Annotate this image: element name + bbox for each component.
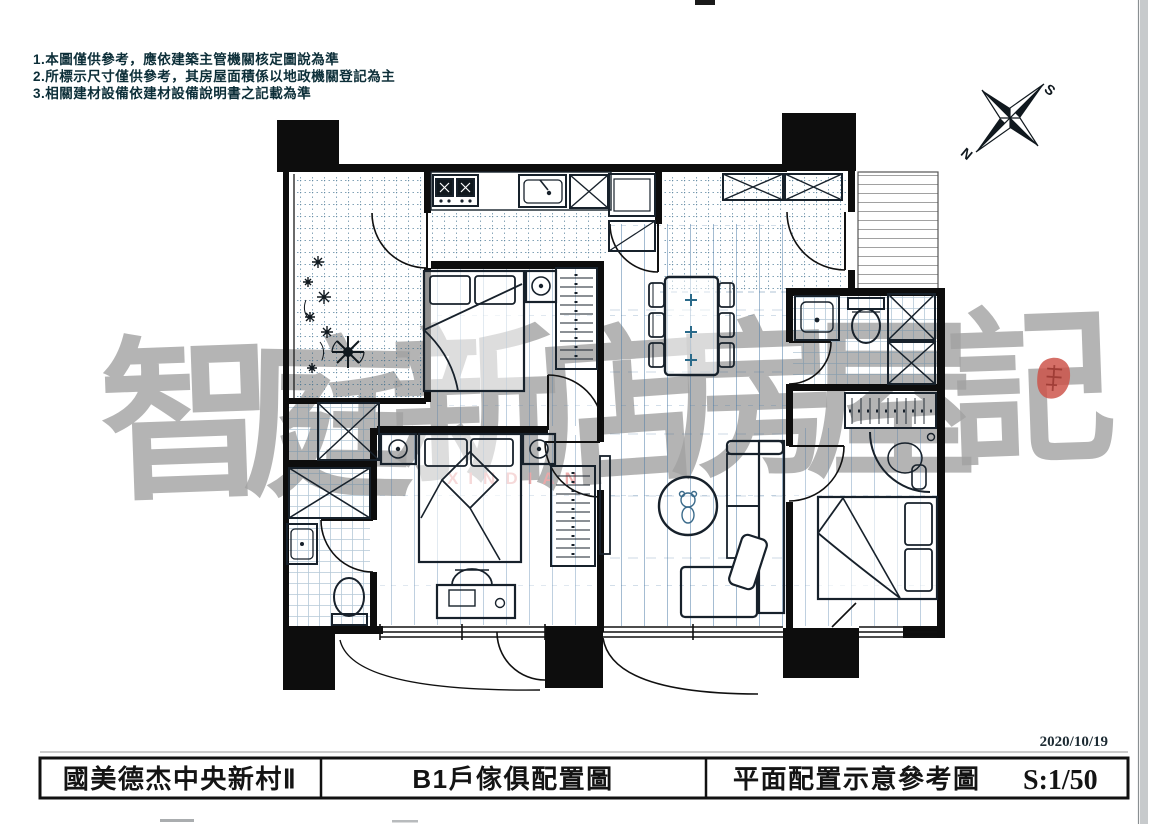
drawing-type: 平面配置示意參考圖 bbox=[733, 764, 981, 794]
note-line-2: 2.所標示尺寸僅供參考，其房屋面積係以地政機關登記為主 bbox=[33, 68, 395, 84]
column-top-left bbox=[277, 120, 339, 172]
floor-plan-sheet: 智 庭 新 店 房 屋 記 XINDIAN bbox=[0, 0, 1168, 824]
note-line-1: 1.本圖僅供參考，應依建築主管機關核定圖說為準 bbox=[33, 51, 339, 67]
laundry-tile-floor bbox=[289, 404, 377, 460]
floor-plan-drawing: 智 庭 新 店 房 屋 記 XINDIAN bbox=[0, 0, 1168, 824]
wall-bath2-top bbox=[289, 460, 377, 467]
wall-foyer-right-a bbox=[848, 168, 855, 212]
wall-top bbox=[336, 164, 787, 172]
column-top-right bbox=[782, 113, 856, 171]
compass-south-label: S bbox=[1041, 81, 1058, 99]
stove bbox=[433, 175, 478, 206]
wall-bath1-left bbox=[786, 288, 793, 342]
watermark-char: 記 bbox=[944, 287, 1119, 491]
scan-mark-top bbox=[695, 0, 715, 5]
wall-balcony-a bbox=[424, 168, 431, 213]
wall-right bbox=[937, 288, 945, 636]
wall-bath1-bottom bbox=[786, 384, 944, 391]
drawing-date: 2020/10/19 bbox=[1040, 734, 1108, 750]
title-block: 國美德杰中央新村Ⅱ B1戶傢俱配置圖 平面配置示意參考圖 S:1/50 2020… bbox=[40, 734, 1128, 798]
wall-bedroom3-left-a bbox=[786, 391, 793, 446]
drawing-title: B1戶傢俱配置圖 bbox=[412, 764, 613, 794]
drawing-scale: S:1/50 bbox=[1023, 765, 1098, 796]
ac-ledge bbox=[858, 172, 938, 290]
compass-star-icon bbox=[976, 84, 1044, 152]
window-bedroom2 bbox=[380, 624, 545, 640]
column-bottom-middle bbox=[545, 626, 603, 688]
kitchen-sink bbox=[519, 175, 566, 207]
compass-north-label: N bbox=[958, 144, 976, 163]
window-living bbox=[603, 624, 783, 640]
master-bed bbox=[424, 271, 524, 391]
wall-bath2-right-a bbox=[370, 428, 377, 520]
refrigerator bbox=[570, 175, 608, 208]
disclaimer-notes: 1.本圖僅供參考，應依建築主管機關核定圖說為準 2.所標示尺寸僅供參考，其房屋面… bbox=[33, 51, 395, 101]
bedroom2-bed bbox=[419, 434, 521, 562]
note-line-3: 3.相關建材設備依建材設備說明書之記載為準 bbox=[33, 85, 311, 101]
wall-kitchen-right bbox=[655, 168, 662, 224]
wall-east-a bbox=[597, 269, 604, 426]
project-name: 國美德杰中央新村Ⅱ bbox=[63, 764, 297, 794]
column-bottom-right bbox=[783, 628, 859, 678]
scan-edge-band bbox=[1140, 0, 1148, 824]
wall-bedroom3-left-b bbox=[786, 502, 793, 628]
balcony-tile-floor bbox=[296, 174, 424, 398]
kitchen-tile-floor bbox=[431, 212, 608, 260]
scan-mark-bottom-1 bbox=[160, 819, 194, 822]
door-balcony-bottom-left bbox=[497, 632, 545, 680]
wall-bottom-left bbox=[283, 626, 383, 634]
wall-bath2-right-b bbox=[370, 572, 377, 634]
bedroom3-bed bbox=[818, 497, 937, 599]
column-bottom-left bbox=[283, 630, 335, 690]
scan-mark-bottom-2 bbox=[392, 820, 418, 823]
compass-rose: S N bbox=[958, 81, 1059, 163]
